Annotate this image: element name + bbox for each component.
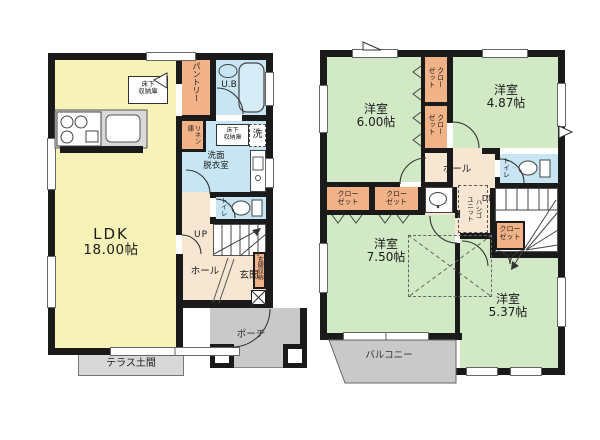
- ladder-unit-label: ハシゴ ユニット: [458, 185, 488, 233]
- hall1f-label: ホール: [183, 267, 227, 278]
- closet-stairs-label: クロー ゼット: [495, 226, 525, 242]
- porch-post-right-core: [288, 349, 302, 363]
- closet-vertical-2-label: クローゼット: [425, 106, 447, 148]
- balcony-sliding-door: [343, 332, 429, 341]
- underfloor-storage-label-1: 床下 収納庫: [128, 81, 168, 96]
- closet-h2-label: クロー ゼット: [375, 191, 418, 207]
- window-2f-left-2: [319, 243, 328, 293]
- floorplan-canvas: LDK 18.00帖 パントリー U.B 床下 収納庫 床下 収納庫 リネン庫 …: [0, 0, 600, 440]
- window-1f-left-2: [47, 256, 56, 308]
- vanity-unit: [250, 150, 266, 192]
- toilet2f-label: トイレ: [501, 155, 512, 182]
- underfloor-storage-label-2: 床下 収納庫: [216, 128, 249, 141]
- ldk-label: LDK 18.00帖: [55, 226, 167, 258]
- shoe-box: [251, 290, 266, 305]
- window-2f-right-1: [557, 83, 566, 127]
- entrance-storage-label: 玄関収納: [253, 253, 266, 288]
- window-2f-left-1: [319, 85, 328, 133]
- ldk-size: 18.00帖: [55, 243, 167, 258]
- washbasin-alcove: [425, 187, 453, 213]
- window-1f-left-1: [47, 138, 56, 190]
- linen-label: リネン庫: [182, 121, 204, 150]
- closet-vertical-1-label: クローゼット: [425, 57, 447, 102]
- window-ub: [265, 72, 274, 106]
- ldk-name: LDK: [55, 226, 167, 243]
- window-2f-bottom-2: [510, 367, 542, 376]
- window-washroom: [265, 158, 274, 188]
- porch-label: ポーチ: [226, 330, 276, 341]
- unit-bath-label: U.B: [216, 80, 242, 90]
- bedroom-se-label: 洋室 5.37帖: [468, 293, 548, 320]
- bedroom-ne-label: 洋室 4.87帖: [466, 84, 546, 111]
- laundry-label: 洗: [249, 129, 266, 140]
- stairs-up-label: UP: [189, 230, 213, 240]
- washroom-label: 洗面 脱衣室: [186, 152, 246, 171]
- pantry-label: パントリー: [182, 60, 210, 115]
- terrace-label: テラス土間: [78, 358, 184, 369]
- window-2f-bottom-1: [466, 367, 498, 376]
- window-2f-top-2: [482, 49, 528, 58]
- window-2f-right-2: [557, 277, 566, 327]
- terrace-sliding-door: [110, 347, 240, 356]
- toilet1f-label: トイレ: [217, 197, 228, 219]
- bedroom-nw-label: 洋室 6.00帖: [336, 103, 416, 130]
- hall2f-label: ホール: [435, 165, 479, 176]
- balcony-label: バルコニー: [358, 351, 420, 362]
- bedroom-sw-label: 洋室 7.50帖: [346, 238, 426, 265]
- closet-h1-label: クロー ゼット: [327, 191, 369, 207]
- window-2f-top-1: [352, 49, 398, 58]
